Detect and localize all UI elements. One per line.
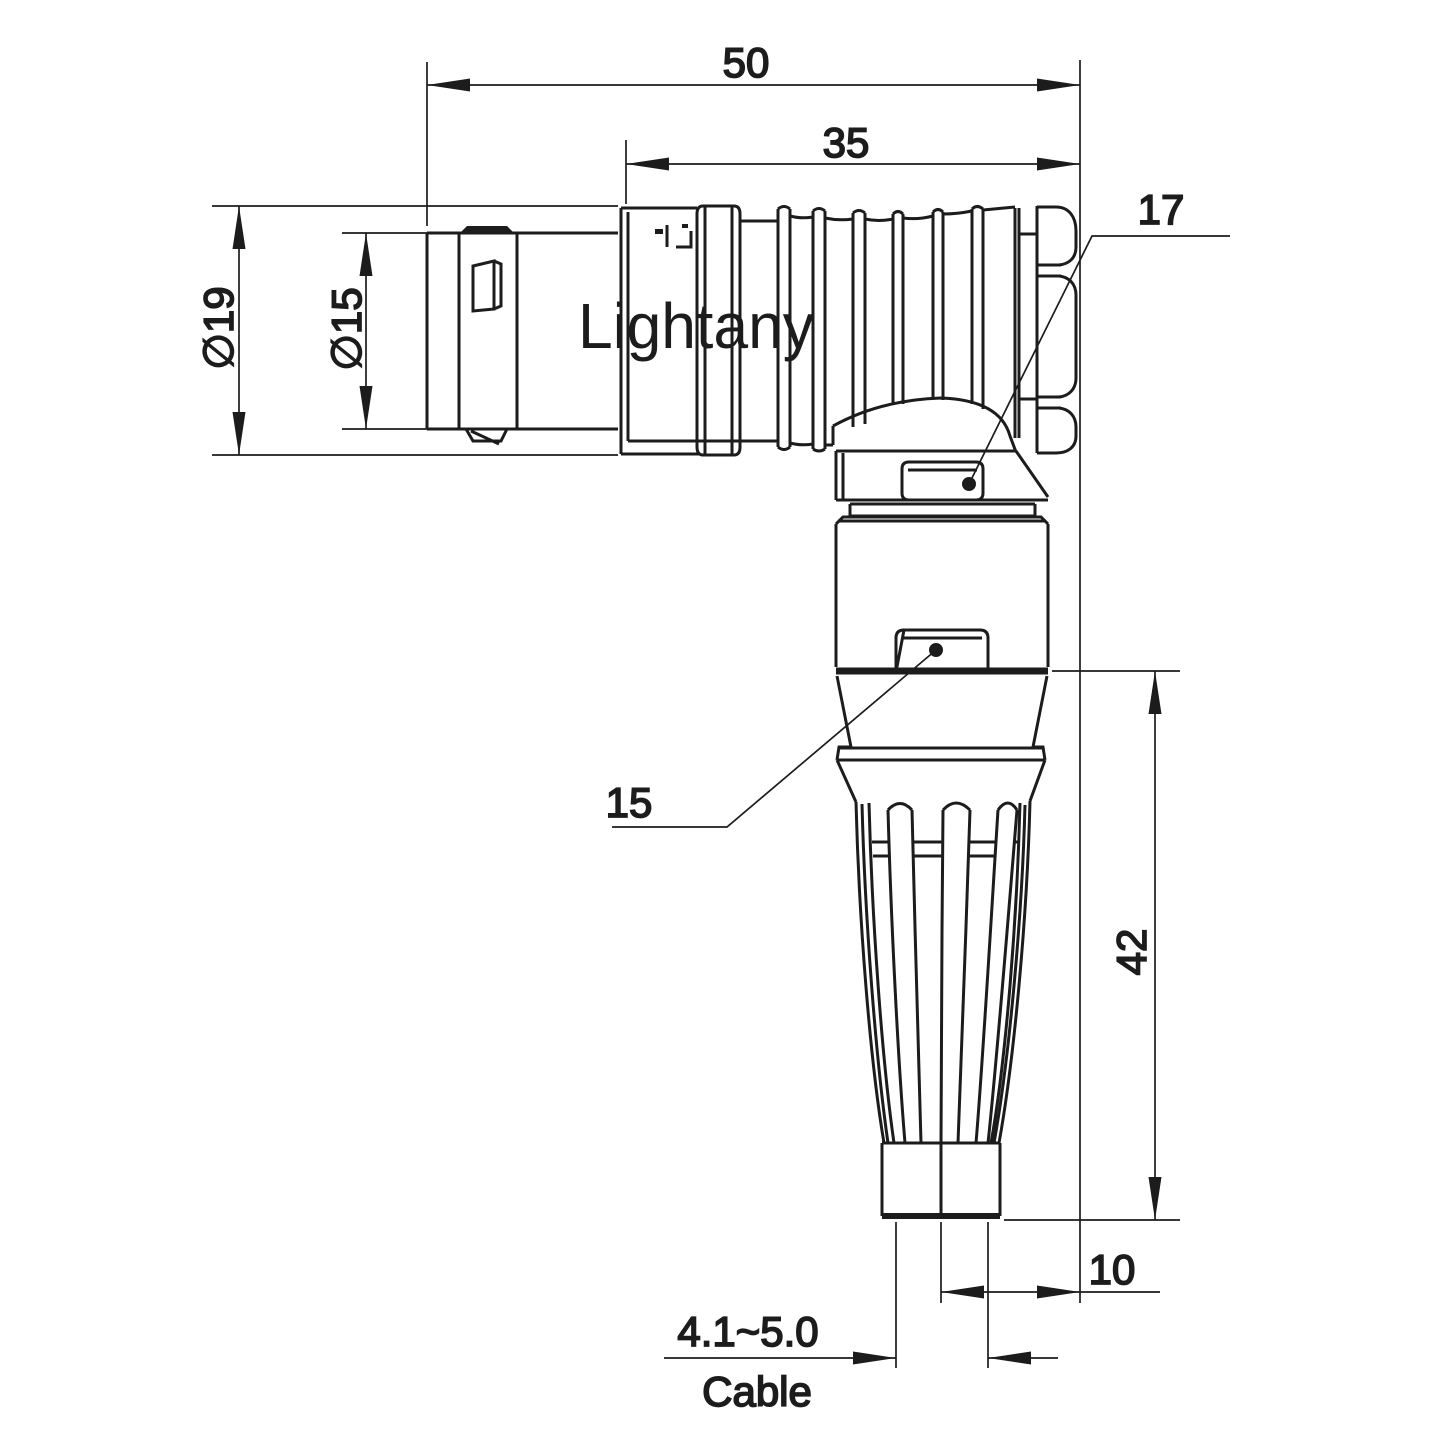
cable-range-label: 4.1~5.0 — [677, 1308, 818, 1355]
leader-15-label: 15 — [606, 779, 653, 826]
dimension-boot-length-35: 35 — [626, 119, 1080, 204]
dim-42-label: 42 — [1108, 929, 1155, 976]
latch-window — [473, 261, 501, 311]
cable-word-label: Cable — [702, 1368, 812, 1415]
dim-50-label: 50 — [723, 39, 770, 86]
dimension-exit-offset-10: 10 — [941, 1246, 1160, 1299]
technical-drawing-page: Lightany — [0, 0, 1440, 1440]
dimension-cable-diameter: 4.1~5.0 Cable — [664, 1222, 1058, 1415]
logo-engraving-strokes — [667, 225, 691, 247]
leader-callout-17: 17 — [969, 186, 1230, 484]
washer-ring — [850, 504, 1035, 516]
logo-engraving-dots — [655, 224, 688, 234]
leader-callout-15: 15 — [606, 650, 936, 827]
connector-dimension-drawing: Lightany — [0, 0, 1440, 1440]
cable-dim-arrows — [853, 1352, 1031, 1365]
dim-10-label: 10 — [1089, 1246, 1136, 1293]
dimension-plug-diameter-15: ∅15 — [323, 233, 427, 429]
cable-ferrule — [882, 1143, 1000, 1216]
lower-taper — [837, 676, 1047, 802]
leader-17-label: 17 — [1138, 186, 1185, 233]
dia-19-label: ∅19 — [195, 286, 242, 369]
dia-19-extension-lines — [212, 206, 618, 455]
leader-17-line — [969, 236, 1230, 484]
dimension-vertical-length-42: 42 — [1004, 671, 1180, 1220]
lower-body — [836, 517, 1048, 667]
elbow-band — [836, 451, 1048, 500]
end-cap-lobes — [1056, 207, 1076, 453]
end-cap — [1015, 206, 1061, 453]
dim-35-label: 35 — [823, 119, 870, 166]
dimension-outer-diameter-19: ∅19 — [195, 206, 618, 455]
latch-key-cap — [460, 226, 514, 233]
strain-relief-fins — [856, 801, 1030, 1143]
leader-15-line — [612, 650, 936, 827]
dia-15-label: ∅15 — [323, 287, 370, 370]
